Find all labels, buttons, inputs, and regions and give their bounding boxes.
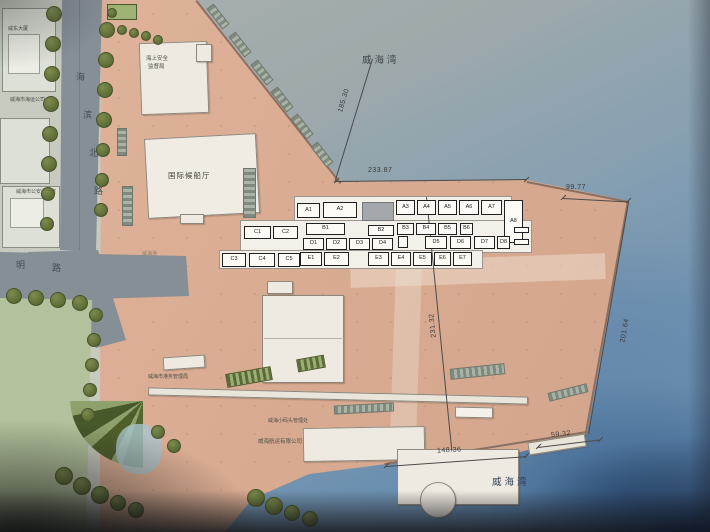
- city-building: [8, 34, 40, 74]
- tree: [28, 290, 44, 306]
- berth-box-D4: D4: [372, 238, 393, 250]
- tree: [41, 156, 57, 172]
- berth-box-A4: A4: [417, 200, 436, 215]
- berth-box-B3: B3: [397, 223, 414, 235]
- berth-box-E3: E3: [368, 252, 389, 266]
- site-plan-photo: A8 233.87 99.77 185.30 231.32 201.64 148…: [0, 0, 710, 532]
- tree: [98, 52, 114, 68]
- building-label: 威海小码头管理处: [268, 418, 308, 424]
- building-label: 威东大厦: [8, 26, 28, 32]
- building-label: 威海航运有限公司: [258, 439, 302, 446]
- berth-box-A5: A5: [438, 200, 457, 215]
- berth-box-small: [398, 236, 408, 248]
- berth-dash: [514, 239, 529, 245]
- tree: [95, 173, 109, 187]
- tree: [85, 358, 99, 372]
- berth-box-B2: B2: [368, 225, 394, 236]
- berth-box-C3: C3: [222, 253, 246, 267]
- berth-gray-structure: [362, 202, 394, 221]
- tree: [153, 35, 163, 45]
- berth-box-A3: A3: [396, 200, 415, 215]
- berth-box-D1: D1: [303, 238, 324, 250]
- berth-box-E1: E1: [300, 252, 322, 266]
- berth-box-B1: B1: [306, 223, 345, 235]
- berth-box-D2: D2: [326, 238, 347, 250]
- building-label: 监督局: [148, 64, 165, 71]
- tree: [167, 439, 181, 453]
- berth-box-B6: B6: [460, 223, 473, 235]
- tree: [73, 477, 91, 495]
- berth-box-E5: E5: [413, 252, 432, 266]
- tree: [46, 6, 62, 22]
- road-name-char: 滨: [83, 108, 92, 121]
- building-small: [267, 281, 293, 294]
- tree: [141, 31, 151, 41]
- city-block: [0, 118, 50, 184]
- tree: [83, 383, 97, 397]
- berth-box-E6: E6: [434, 252, 451, 266]
- bay-label-top: 威海湾: [362, 52, 400, 66]
- parking-strip: [122, 186, 133, 226]
- berth-box-D3: D3: [349, 238, 370, 250]
- apron-label: 威海港: [142, 251, 157, 257]
- roof-line: [264, 338, 342, 339]
- berth-box-A6: A6: [459, 200, 479, 215]
- tree: [45, 36, 61, 52]
- tree: [96, 143, 110, 157]
- tree: [91, 486, 109, 504]
- berth-box-E4: E4: [391, 252, 411, 266]
- berth-box-A7: A7: [481, 200, 502, 215]
- tree: [129, 28, 139, 38]
- building-rotunda: [420, 482, 456, 518]
- tree: [265, 497, 283, 515]
- tree: [55, 467, 73, 485]
- dimension-label: 233.87: [368, 167, 392, 174]
- tree: [50, 292, 66, 308]
- tree: [42, 126, 58, 142]
- tree: [284, 505, 300, 521]
- tree: [117, 25, 127, 35]
- building-msa-annex: [196, 44, 212, 62]
- building-label: 威海市海运公司: [10, 97, 45, 103]
- dimension-label: 99.77: [566, 184, 586, 191]
- road-name-char: 明: [16, 258, 25, 271]
- berth-box-C4: C4: [249, 253, 275, 267]
- berth-box-D8: D8: [497, 236, 510, 249]
- tree: [97, 82, 113, 98]
- tree: [72, 295, 88, 311]
- tree: [94, 203, 108, 217]
- berth-box-E2: E2: [324, 252, 349, 266]
- tree: [96, 112, 112, 128]
- bay-label-bottom: 威海湾: [492, 474, 530, 488]
- berth-box-D7: D7: [474, 236, 495, 249]
- road-name-char: 路: [52, 261, 61, 274]
- road-name-char: 海: [76, 70, 85, 83]
- tree: [43, 96, 59, 112]
- building-small: [455, 407, 493, 419]
- building-label: 海上安全: [146, 56, 168, 63]
- berth-box-B4: B4: [416, 223, 436, 235]
- berth-box-E7: E7: [453, 252, 472, 266]
- tree: [99, 22, 115, 38]
- berth-box-A1: A1: [297, 203, 320, 218]
- berth-box-B5: B5: [438, 223, 457, 235]
- tree: [302, 511, 318, 527]
- tree: [81, 408, 95, 422]
- berth-box-D5: D5: [425, 236, 447, 249]
- dimension-label: 148.36: [437, 446, 462, 454]
- tree: [40, 217, 54, 231]
- tree: [107, 8, 117, 18]
- tree: [110, 495, 126, 511]
- tree: [89, 308, 103, 322]
- berth-box-C2: C2: [273, 226, 298, 239]
- parking-strip: [243, 168, 256, 218]
- tree: [151, 425, 165, 439]
- building-label: 国际候船厅: [168, 171, 211, 180]
- city-building: [10, 198, 44, 228]
- building-terminal-entrance: [180, 214, 204, 224]
- tree: [128, 502, 144, 518]
- berth-box-C1: C1: [244, 226, 271, 239]
- tree: [87, 333, 101, 347]
- parking-strip: [117, 128, 127, 156]
- building-label: 威海市港务管理局: [148, 374, 188, 380]
- tree: [41, 187, 55, 201]
- tree: [247, 489, 265, 507]
- road-centerline: [79, 0, 80, 250]
- berth-box-C5: C5: [278, 253, 300, 267]
- berth-dash: [514, 227, 529, 233]
- berth-box-D6: D6: [450, 236, 471, 249]
- berth-box-A2: A2: [323, 202, 357, 218]
- tree: [44, 66, 60, 82]
- tree: [6, 288, 22, 304]
